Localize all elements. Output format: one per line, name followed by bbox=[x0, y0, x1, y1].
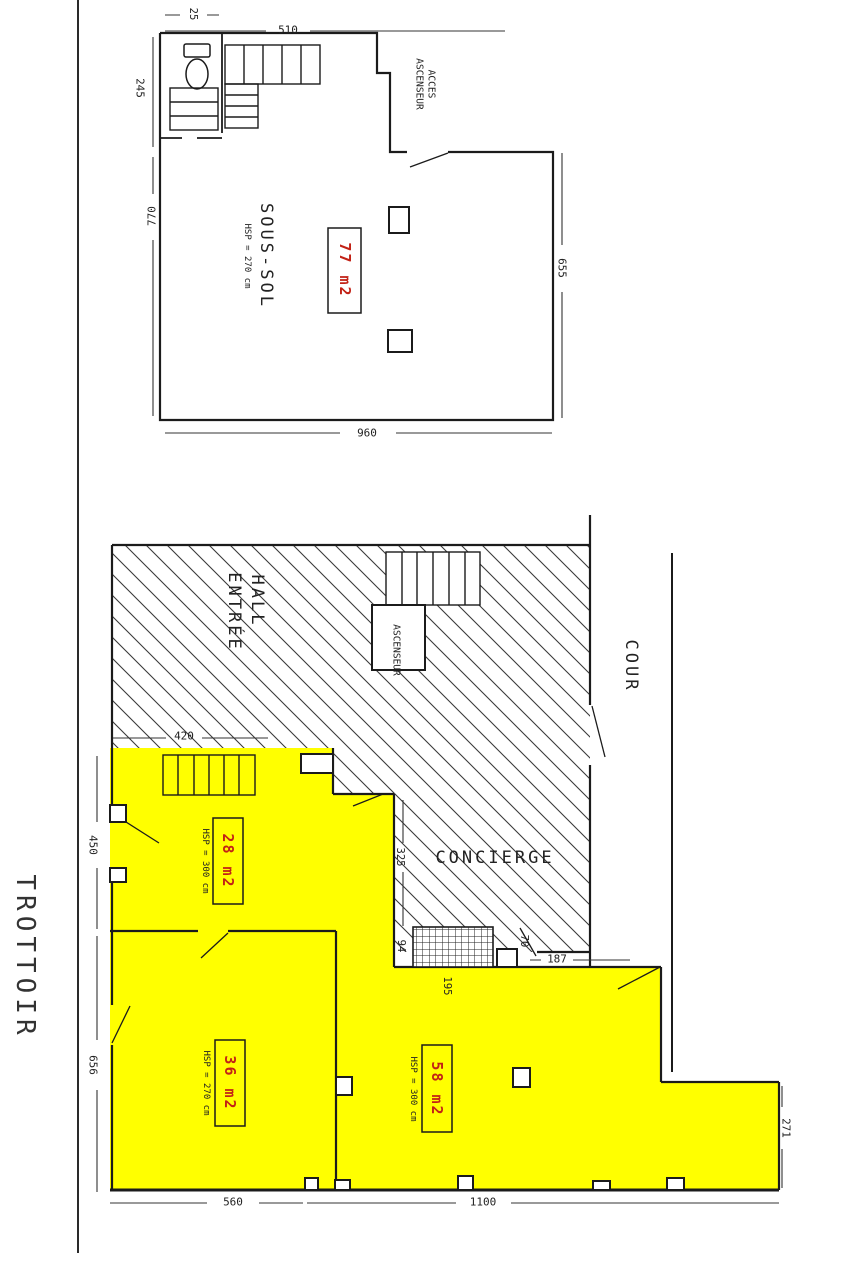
floor-plan-drawing: TROTTOIR SOUS-SOL HSP = 270 cm bbox=[0, 0, 850, 1280]
dim-hall-width: 420 bbox=[174, 730, 194, 743]
room28-area-label: 28 m2 bbox=[219, 833, 237, 888]
room58-area-label: 58 m2 bbox=[428, 1061, 446, 1116]
basement-area-label: 77 m2 bbox=[336, 242, 354, 297]
elevator-access-label-line1: ACCES bbox=[426, 70, 437, 99]
toilet-icon bbox=[184, 44, 210, 89]
basement-wall-outline bbox=[160, 33, 553, 420]
grid-skylight-pattern bbox=[413, 927, 493, 967]
dim-basement-bottom: 960 bbox=[357, 427, 377, 440]
dim-bottom-right: 1100 bbox=[470, 1196, 497, 1209]
dim-concierge-height: 325 bbox=[394, 848, 406, 867]
dim-toilet: 25 bbox=[187, 8, 199, 21]
basement-door-swing bbox=[410, 153, 448, 167]
basement-ceiling-height: HSP = 270 cm bbox=[242, 223, 252, 288]
dim-grid-width: 94 bbox=[395, 940, 407, 953]
basement-wall-top bbox=[160, 33, 407, 152]
basement-plan: SOUS-SOL HSP = 270 cm 77 m2 ACCES ASCENS… bbox=[134, 8, 569, 440]
dim-grid-length: 195 bbox=[441, 977, 453, 996]
basement-column bbox=[388, 330, 412, 352]
room36-area-label: 36 m2 bbox=[221, 1055, 239, 1110]
room58-ceiling-height: HSP = 300 cm bbox=[408, 1056, 418, 1121]
hall-label-line1: HALL bbox=[247, 575, 267, 628]
room36-ceiling-height: HSP = 270 cm bbox=[201, 1050, 211, 1115]
hall-stairs bbox=[386, 552, 480, 605]
basement-room-name: SOUS-SOL bbox=[256, 203, 276, 309]
elevator-access-label-line2: ASCENSEUR bbox=[414, 58, 425, 110]
basement-stairs-left bbox=[170, 88, 218, 130]
dim-left-lower: 656 bbox=[87, 1055, 100, 1075]
courtyard-label: COUR bbox=[621, 640, 641, 693]
dim-court-gap: 187 bbox=[547, 953, 567, 966]
elevator-label: ASCENSEUR bbox=[391, 624, 402, 676]
floor-plan-page: TROTTOIR SOUS-SOL HSP = 270 cm bbox=[0, 0, 850, 1280]
basement-column bbox=[389, 207, 409, 233]
dim-basement-left-upper: 245 bbox=[134, 78, 147, 98]
dim-left-upper: 450 bbox=[87, 835, 100, 855]
basement-dimension-lines bbox=[153, 15, 562, 433]
dim-bottom-left: 560 bbox=[223, 1196, 243, 1209]
sidewalk-label: TROTTOIR bbox=[10, 874, 40, 1039]
concierge-label: CONCIERGE bbox=[435, 848, 554, 868]
dim-basement-top: 510 bbox=[278, 24, 298, 37]
dim-basement-right: 655 bbox=[556, 258, 569, 278]
room28-ceiling-height: HSP = 300 cm bbox=[200, 828, 210, 893]
dim-basement-left-lower: 770 bbox=[146, 206, 159, 226]
basement-stairs-main bbox=[225, 45, 320, 128]
dim-right-extension: 271 bbox=[780, 1118, 793, 1138]
dim-door: 70 bbox=[518, 935, 530, 948]
ground-floor-plan: ASCENSEUR HALL ENTRÉE COUR CONCIERGE bbox=[87, 515, 793, 1209]
hall-label-line2: ENTRÉE bbox=[224, 572, 246, 651]
